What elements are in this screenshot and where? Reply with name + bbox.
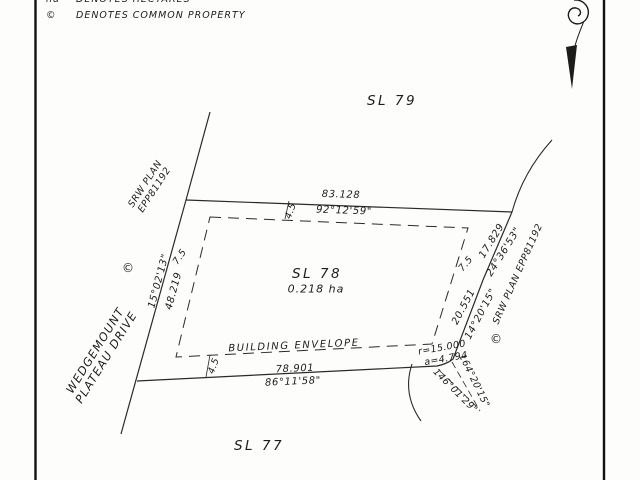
boundary-curve-northeast xyxy=(512,140,552,212)
north-arrow-stem xyxy=(575,21,584,46)
legend-text-ha: DENOTES HECTARES xyxy=(76,0,191,5)
common-property-symbol-right: © xyxy=(490,332,502,346)
plan-linework xyxy=(0,0,640,480)
dim-top-bearing: 92°12'59" xyxy=(316,205,372,218)
common-property-symbol-left: © xyxy=(122,261,134,275)
lot-label-sl79: SL 79 xyxy=(367,93,417,109)
lot-label-sl78: SL 78 xyxy=(292,266,342,282)
legend-row-common-property: © DENOTES COMMON PROPERTY xyxy=(46,10,246,21)
legend-text-cp: DENOTES COMMON PROPERTY xyxy=(76,10,246,21)
dim-top-length: 83.128 xyxy=(322,189,361,201)
legend-symbol-cp: © xyxy=(46,10,76,21)
legend-symbol-ha: ha xyxy=(46,0,76,5)
survey-plan-sheet: ha DENOTES HECTARES © DENOTES COMMON PRO… xyxy=(0,0,640,480)
legend-row-hectares: ha DENOTES HECTARES xyxy=(46,0,191,5)
dim-bottom-length: 78.901 xyxy=(275,363,314,376)
north-arrow-icon xyxy=(566,0,588,89)
lot-area-sl78: 0.218 ha xyxy=(288,283,345,296)
lot-label-sl77: SL 77 xyxy=(234,438,284,454)
north-arrow-scroll xyxy=(568,0,588,24)
road-curve-south xyxy=(409,364,421,421)
north-arrow-needle xyxy=(566,45,577,89)
